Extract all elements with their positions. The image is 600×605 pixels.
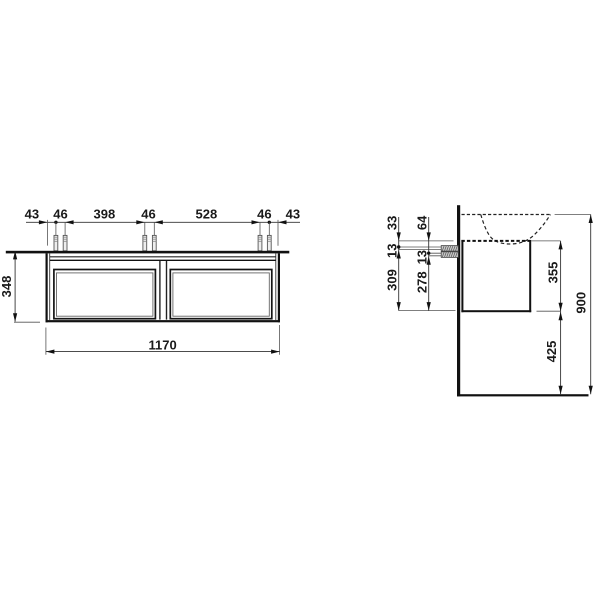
svg-text:46: 46 — [257, 207, 271, 222]
svg-text:1170: 1170 — [148, 337, 176, 352]
svg-text:425: 425 — [544, 341, 559, 363]
svg-text:278: 278 — [414, 271, 429, 293]
svg-text:348: 348 — [0, 276, 14, 298]
svg-text:528: 528 — [196, 207, 218, 222]
svg-text:33: 33 — [384, 216, 399, 230]
svg-text:398: 398 — [94, 207, 116, 222]
svg-text:355: 355 — [545, 262, 560, 284]
svg-text:64: 64 — [414, 215, 429, 230]
svg-text:46: 46 — [53, 207, 67, 222]
svg-text:900: 900 — [573, 292, 588, 314]
svg-text:13: 13 — [384, 244, 399, 258]
svg-text:43: 43 — [25, 207, 39, 222]
svg-text:46: 46 — [141, 207, 155, 222]
svg-text:309: 309 — [384, 269, 399, 291]
svg-text:13: 13 — [414, 250, 429, 264]
svg-text:43: 43 — [286, 207, 300, 222]
